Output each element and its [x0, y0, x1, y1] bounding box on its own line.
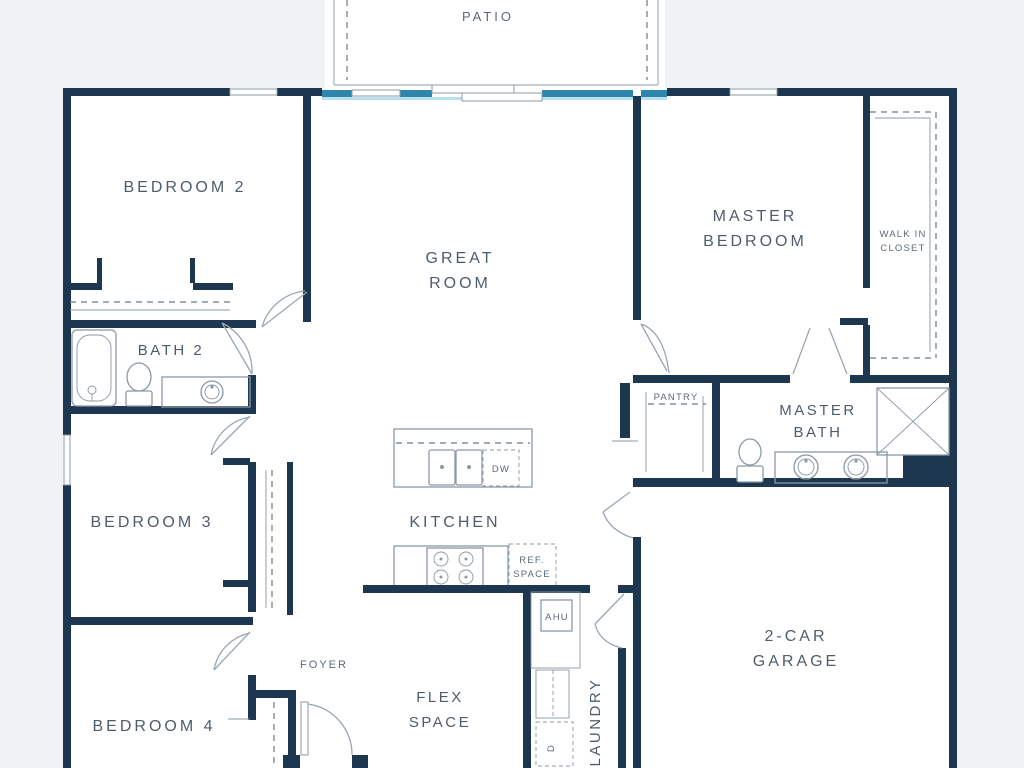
- sliding-door-panel: [432, 85, 514, 93]
- walk-in-closet-label-line2: CLOSET: [880, 243, 925, 254]
- ahu-label: AHU: [545, 612, 569, 623]
- dishwasher-label: DW: [492, 464, 510, 475]
- garage-label-line2: GARAGE: [753, 653, 839, 670]
- bedroom2-label: BEDROOM 2: [123, 179, 246, 196]
- flex-space-label-line2: SPACE: [409, 714, 471, 731]
- dryer-label: D: [546, 744, 557, 752]
- garage-label-line1: 2-CAR: [764, 628, 827, 645]
- sliding-door-panel: [462, 93, 542, 101]
- floor-plan: PATIO BEDROOM 2: [0, 0, 1024, 768]
- patio-label: PATIO: [462, 9, 514, 24]
- great-room-label-line2: ROOM: [429, 275, 491, 292]
- toilet-icon: [126, 363, 152, 406]
- bedroom4-label: BEDROOM 4: [92, 718, 215, 735]
- bath2-label: BATH 2: [138, 342, 204, 359]
- master-bedroom-label-line1: MASTER: [713, 208, 798, 225]
- bedroom3-label: BEDROOM 3: [90, 514, 213, 531]
- laundry-label: LAUNDRY: [587, 678, 604, 767]
- flex-space-label-line1: FLEX: [416, 689, 464, 706]
- window: [352, 90, 400, 96]
- master-bath-label-line2: BATH: [794, 424, 843, 441]
- great-room-label-line1: GREAT: [426, 250, 495, 267]
- toilet-icon: [737, 439, 763, 482]
- foyer-label: FOYER: [300, 659, 348, 671]
- kitchen-label: KITCHEN: [409, 514, 500, 531]
- pantry-label: PANTRY: [654, 392, 699, 403]
- master-bath-label-line1: MASTER: [779, 402, 857, 419]
- walk-in-closet-label-line1: WALK IN: [879, 229, 926, 240]
- master-bedroom-label-line2: BEDROOM: [703, 233, 807, 250]
- ref-space-label-line2: SPACE: [513, 569, 551, 580]
- ref-space-label-line1: REF.: [519, 555, 544, 566]
